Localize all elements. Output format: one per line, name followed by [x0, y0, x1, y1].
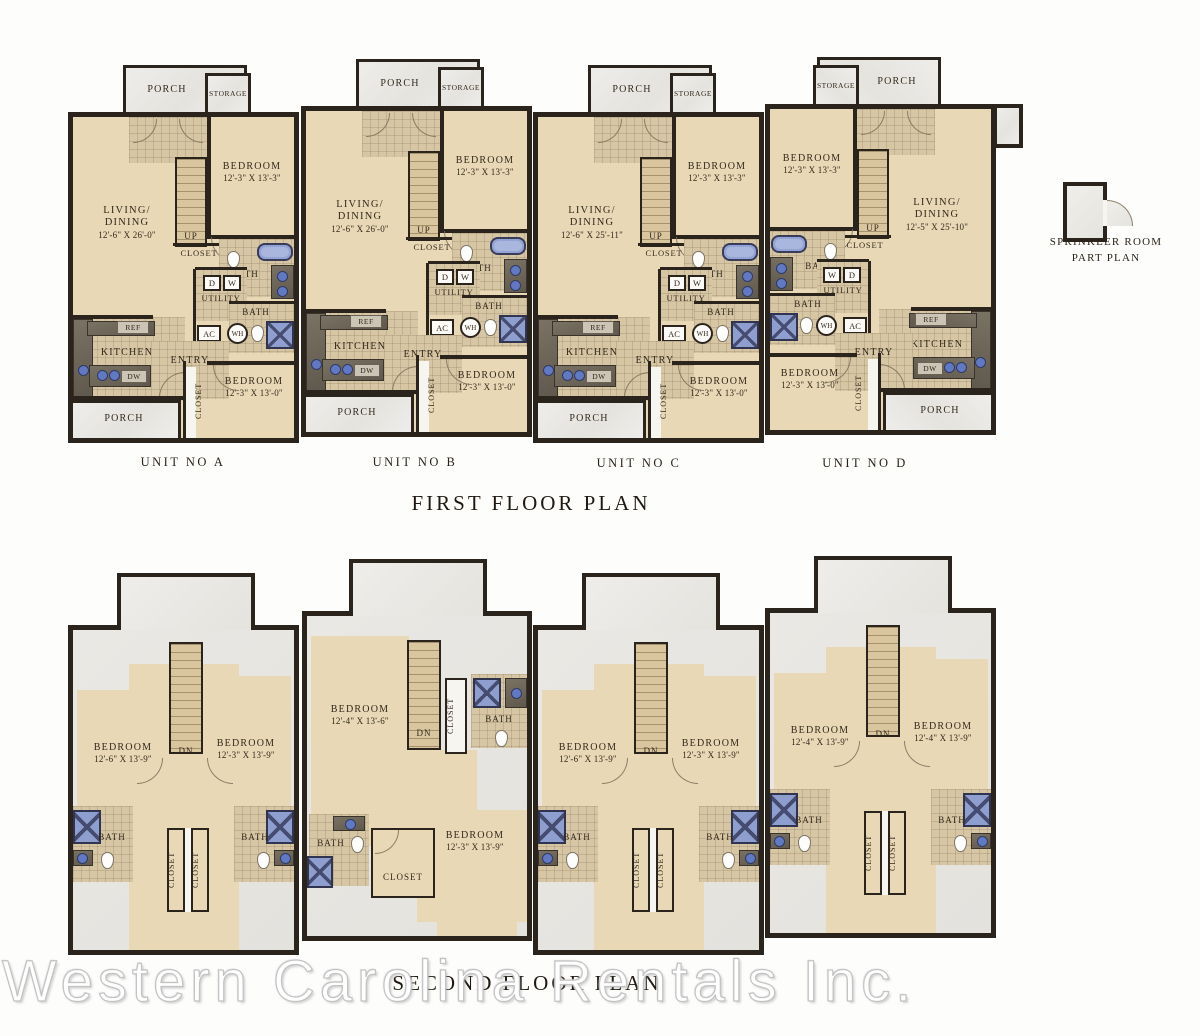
interior-wall — [658, 269, 661, 349]
sink — [277, 286, 288, 297]
second-floor-unit-c: DN BEDROOM 12'-6" X 13'-9" BEDROOM 12'-3… — [533, 625, 764, 955]
interior-wall — [694, 301, 759, 304]
dw-tag: DW — [121, 370, 147, 383]
rear-porch: PORCH — [73, 400, 181, 438]
dryer-box: D — [843, 267, 861, 283]
sprinkler-room-bumpout — [993, 104, 1023, 148]
sink — [742, 271, 753, 282]
washer-box: W — [223, 275, 241, 291]
interior-wall — [853, 109, 857, 231]
second-floor-unit-d: DN BEDROOM 12'-4" X 13'-9" BEDROOM 12'-4… — [765, 608, 996, 938]
staircase — [169, 642, 203, 754]
first-floor-unit-b: PORCH STORAGE UP LIVING/ DINING 12'-6" X… — [301, 106, 532, 437]
closet-label: CLOSET — [660, 370, 674, 432]
ref-tag: REF — [582, 321, 614, 334]
sink — [277, 271, 288, 282]
bath-label: BATH — [701, 832, 739, 842]
interior-wall — [229, 301, 294, 304]
sprinkler-room-label-line1: SPRINKLER ROOM — [1038, 236, 1174, 248]
sink — [330, 364, 341, 375]
shower — [307, 856, 333, 888]
sink — [345, 819, 356, 830]
bedroom-label: BEDROOM 12'-3" X 13'-3" — [211, 161, 293, 183]
closet-label: CLOSET — [633, 836, 648, 904]
porch-label: PORCH — [130, 84, 204, 95]
closet-label: CLOSET — [373, 872, 433, 882]
closet-label: CLOSET — [640, 249, 688, 259]
sink — [78, 365, 89, 376]
sink — [745, 853, 756, 864]
sink — [574, 370, 585, 381]
rear-porch: PORCH — [883, 392, 991, 430]
closet-label: CLOSET — [408, 243, 456, 253]
bedroom-label: BEDROOM 12'-4" X 13'-6" — [315, 704, 405, 726]
bedroom-label: BEDROOM 12'-3" X 13'-3" — [676, 161, 758, 183]
sink — [543, 365, 554, 376]
sink — [542, 853, 553, 864]
closet-door-gap — [868, 359, 878, 430]
sink — [77, 853, 88, 864]
dormer — [349, 559, 487, 616]
dn-label: DN — [405, 728, 443, 738]
water-heater-circle: WH — [692, 323, 713, 344]
bedroom-label: BEDROOM 12'-3" X 13'-3" — [444, 155, 526, 177]
sink — [776, 278, 787, 289]
sink — [109, 370, 120, 381]
bath-label: BATH — [311, 838, 351, 848]
closet-label: CLOSET — [428, 364, 442, 426]
sink — [342, 364, 353, 375]
second-floor-unit-a: DN BEDROOM 12'-6" X 13'-9" BEDROOM 12'-3… — [68, 625, 299, 955]
sink — [774, 836, 785, 847]
sprinkler-room-outline — [1063, 182, 1107, 242]
closet-label: CLOSET — [195, 370, 209, 432]
dn-label: DN — [864, 729, 902, 739]
porch-label: PORCH — [860, 76, 934, 87]
bath-label: BATH — [93, 832, 131, 842]
closet-label: CLOSET — [168, 836, 183, 904]
hall-area — [129, 912, 239, 950]
rear-porch: PORCH — [306, 394, 414, 432]
dormer — [814, 556, 952, 613]
sink — [510, 280, 521, 291]
living-dining-label: LIVING/ DINING 12'-6" X 25'-11" — [540, 205, 644, 240]
sink — [510, 265, 521, 276]
shower — [266, 321, 294, 349]
storage-label: STORAGE — [208, 90, 248, 98]
water-heater-circle: WH — [460, 317, 481, 338]
porch-label: PORCH — [554, 413, 624, 424]
shower — [473, 678, 501, 708]
porch-label: PORCH — [89, 413, 159, 424]
closet-label: CLOSET — [841, 241, 889, 251]
bathtub — [257, 243, 293, 261]
unit-label-c: UNIT NO C — [564, 456, 714, 471]
closet-label: CLOSET — [889, 819, 904, 887]
storage-room: STORAGE — [205, 73, 251, 115]
storage-label: STORAGE — [816, 82, 856, 90]
bath-label: BATH — [790, 815, 828, 825]
ref-tag: REF — [350, 315, 382, 328]
first-floor-plan-title: FIRST FLOOR PLAN — [381, 491, 681, 516]
closet-label: CLOSET — [447, 684, 464, 748]
interior-wall — [426, 263, 429, 343]
dn-label: DN — [632, 746, 670, 756]
interior-wall — [193, 269, 196, 349]
sink — [944, 362, 955, 373]
sink — [977, 836, 988, 847]
sink — [742, 286, 753, 297]
dormer — [582, 573, 720, 630]
storage-label: STORAGE — [441, 84, 481, 92]
bath-label: BATH — [558, 832, 596, 842]
sink — [776, 263, 787, 274]
interior-wall — [428, 261, 480, 264]
porch-label: PORCH — [322, 407, 392, 418]
bath-label: BATH — [698, 307, 744, 317]
bedroom-label: BEDROOM 12'-3" X 13'-3" — [771, 153, 853, 175]
dw-tag: DW — [586, 370, 612, 383]
porch-label: PORCH — [905, 405, 975, 416]
second-floor-unit-b: DN BEDROOM 12'-4" X 13'-6" CLOSET BATH B… — [302, 611, 532, 941]
ref-tag: REF — [117, 321, 149, 334]
bath-label: BATH — [466, 301, 512, 311]
staircase — [634, 642, 668, 754]
bath-label: BATH — [236, 832, 274, 842]
dw-tag: DW — [354, 364, 380, 377]
closet-label: CLOSET — [192, 836, 207, 904]
bathtub — [722, 243, 758, 261]
interior-wall — [817, 259, 869, 262]
washer-box: W — [456, 269, 474, 285]
sprinkler-room-label-line2: PART PLAN — [1038, 252, 1174, 264]
unit-label-b: UNIT NO B — [340, 455, 490, 470]
ac-unit-box: AC — [430, 319, 454, 336]
interior-wall — [173, 243, 219, 246]
ac-unit-box: AC — [197, 325, 221, 342]
first-floor-unit-d: PORCH STORAGE UP LIVING/ DINING 12'-5" X… — [765, 104, 996, 435]
living-dining-label: LIVING/ DINING 12'-6" X 26'-0" — [308, 199, 412, 234]
ref-tag: REF — [915, 313, 947, 326]
dw-tag: DW — [917, 362, 943, 375]
water-heater-circle: WH — [227, 323, 248, 344]
watermark-text: Western Carolina Rentals Inc. — [2, 948, 1198, 1015]
dryer-box: D — [436, 269, 454, 285]
shower — [731, 321, 759, 349]
storage-room: STORAGE — [438, 67, 484, 109]
sink — [511, 688, 522, 699]
interior-wall — [462, 295, 527, 298]
porch-label: PORCH — [363, 78, 437, 89]
porch-label: PORCH — [595, 84, 669, 95]
bathtub — [490, 237, 526, 255]
sink — [97, 370, 108, 381]
unit-label-d: UNIT NO D — [790, 456, 940, 471]
bathtub — [771, 235, 807, 253]
living-dining-label: LIVING/ DINING 12'-5" X 25'-10" — [885, 197, 989, 232]
bath-label: BATH — [233, 307, 279, 317]
sink — [562, 370, 573, 381]
floor-plan-canvas: PORCH STORAGE UP LIVING/ DINING 12'-6" X… — [0, 0, 1200, 1036]
dormer — [117, 573, 255, 630]
bedroom-label: BEDROOM 12'-3" X 13'-9" — [429, 830, 521, 852]
bedroom-label: BEDROOM 12'-3" X 13'-9" — [668, 738, 754, 760]
interior-wall — [845, 235, 891, 238]
interior-wall — [195, 267, 247, 270]
storage-room: STORAGE — [670, 73, 716, 115]
shower — [770, 313, 798, 341]
closet-label: CLOSET — [175, 249, 223, 259]
hall-area — [437, 916, 517, 936]
living-dining-label: LIVING/ DINING 12'-6" X 26'-0" — [75, 205, 179, 240]
sink — [311, 359, 322, 370]
closet-label: CLOSET — [855, 362, 869, 424]
bedroom-label: BEDROOM 12'-4" X 13'-9" — [900, 721, 986, 743]
staircase — [866, 625, 900, 737]
sink — [975, 357, 986, 368]
door-arc — [1107, 200, 1133, 226]
interior-wall — [660, 267, 712, 270]
bath-label: BATH — [785, 299, 831, 309]
hall-area — [826, 895, 936, 933]
interior-wall — [406, 237, 452, 240]
storage-label: STORAGE — [673, 90, 713, 98]
first-floor-unit-c: PORCH STORAGE UP LIVING/ DINING 12'-6" X… — [533, 112, 764, 443]
closet-label: CLOSET — [865, 819, 880, 887]
sink — [956, 362, 967, 373]
ac-unit-box: AC — [843, 317, 867, 334]
dn-label: DN — [167, 746, 205, 756]
closet-label: CLOSET — [657, 836, 672, 904]
interior-wall — [868, 261, 871, 341]
water-heater-circle: WH — [816, 315, 837, 336]
bedroom-label: BEDROOM 12'-3" X 13'-9" — [203, 738, 289, 760]
interior-wall — [770, 293, 835, 296]
dryer-box: D — [668, 275, 686, 291]
bath-label: BATH — [475, 714, 523, 724]
washer-box: W — [823, 267, 841, 283]
hall-area — [594, 912, 704, 950]
shower — [499, 315, 527, 343]
interior-wall — [638, 243, 684, 246]
sink — [280, 853, 291, 864]
dryer-box: D — [203, 275, 221, 291]
unit-label-a: UNIT NO A — [108, 455, 258, 470]
storage-room: STORAGE — [813, 65, 859, 107]
ac-unit-box: AC — [662, 325, 686, 342]
rear-porch: PORCH — [538, 400, 646, 438]
washer-box: W — [688, 275, 706, 291]
bath-label: BATH — [933, 815, 971, 825]
first-floor-unit-a: PORCH STORAGE UP LIVING/ DINING 12'-6" X… — [68, 112, 299, 443]
